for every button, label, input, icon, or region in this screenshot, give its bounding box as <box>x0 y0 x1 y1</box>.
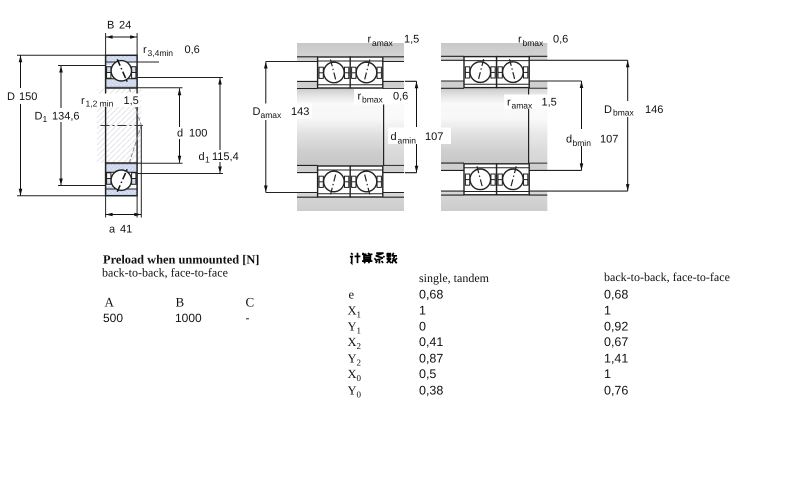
svg-text:B: B <box>176 295 185 310</box>
svg-text:r: r <box>143 44 147 56</box>
svg-text:1,2 min: 1,2 min <box>86 99 114 109</box>
svg-text:r: r <box>507 97 511 109</box>
svg-text:0: 0 <box>419 319 426 333</box>
svg-text:bmax: bmax <box>362 95 384 105</box>
svg-text:r: r <box>368 34 372 46</box>
svg-text:back-to-back, face-to-face: back-to-back, face-to-face <box>604 270 730 284</box>
svg-text:D: D <box>7 91 15 103</box>
svg-text:1: 1 <box>604 367 611 381</box>
svg-text:0,6: 0,6 <box>185 44 200 56</box>
svg-text:D: D <box>35 111 43 123</box>
svg-text:0,67: 0,67 <box>604 335 628 349</box>
svg-text:amax: amax <box>261 110 283 120</box>
svg-text:0,68: 0,68 <box>604 287 628 301</box>
svg-text:B: B <box>107 20 114 32</box>
svg-text:a: a <box>109 224 116 236</box>
svg-text:amax: amax <box>512 101 534 111</box>
svg-text:500: 500 <box>103 311 123 325</box>
svg-text:146: 146 <box>645 104 663 116</box>
svg-text:0,5: 0,5 <box>419 367 436 381</box>
svg-text:bmin: bmin <box>573 138 592 148</box>
svg-text:107: 107 <box>600 134 618 146</box>
svg-text:C: C <box>246 295 255 310</box>
svg-text:1,41: 1,41 <box>604 351 628 365</box>
svg-text:0,92: 0,92 <box>604 319 628 333</box>
svg-text:134,6: 134,6 <box>52 111 80 123</box>
svg-text:143: 143 <box>291 106 309 118</box>
svg-text:r: r <box>81 95 85 107</box>
svg-text:3,4min: 3,4min <box>148 48 174 58</box>
svg-text:Preload when unmounted [N]: Preload when unmounted [N] <box>103 253 259 267</box>
svg-text:24: 24 <box>119 20 131 32</box>
svg-text:41: 41 <box>120 224 132 236</box>
svg-text:d: d <box>199 151 205 163</box>
svg-text:D: D <box>253 106 261 118</box>
svg-text:amax: amax <box>372 38 394 48</box>
svg-text:D: D <box>604 104 612 116</box>
svg-text:d: d <box>177 128 183 140</box>
svg-text:1,5: 1,5 <box>124 95 139 107</box>
svg-text:0,6: 0,6 <box>553 34 568 46</box>
svg-text:bmax: bmax <box>613 108 635 118</box>
svg-text:107: 107 <box>425 131 443 143</box>
svg-text:100: 100 <box>189 128 207 140</box>
svg-text:A: A <box>105 295 115 310</box>
svg-text:0,38: 0,38 <box>419 383 443 397</box>
svg-text:1,5: 1,5 <box>404 34 419 46</box>
svg-text:single, tandem: single, tandem <box>419 271 490 285</box>
svg-text:1: 1 <box>419 303 426 317</box>
svg-text:r: r <box>358 91 362 103</box>
svg-text:r: r <box>518 34 522 46</box>
svg-text:1: 1 <box>205 155 210 165</box>
svg-text:1,5: 1,5 <box>542 97 557 109</box>
svg-text:amin: amin <box>398 136 417 146</box>
svg-text:115,4: 115,4 <box>212 151 239 163</box>
svg-text:150: 150 <box>19 91 37 103</box>
svg-text:0,68: 0,68 <box>419 287 443 301</box>
svg-text:d: d <box>391 131 397 143</box>
svg-text:0,87: 0,87 <box>419 351 443 365</box>
svg-text:1: 1 <box>604 303 611 317</box>
svg-text:0,41: 0,41 <box>419 335 443 349</box>
svg-text:0,6: 0,6 <box>393 91 408 103</box>
svg-text:1: 1 <box>43 114 48 124</box>
svg-text:e: e <box>349 287 355 301</box>
svg-text:back-to-back, face-to-face: back-to-back, face-to-face <box>102 266 228 280</box>
svg-text:bmax: bmax <box>523 38 545 48</box>
svg-text:1000: 1000 <box>175 311 202 325</box>
svg-text:-: - <box>246 311 250 325</box>
svg-text:0,76: 0,76 <box>604 383 628 397</box>
svg-text:d: d <box>566 134 572 146</box>
